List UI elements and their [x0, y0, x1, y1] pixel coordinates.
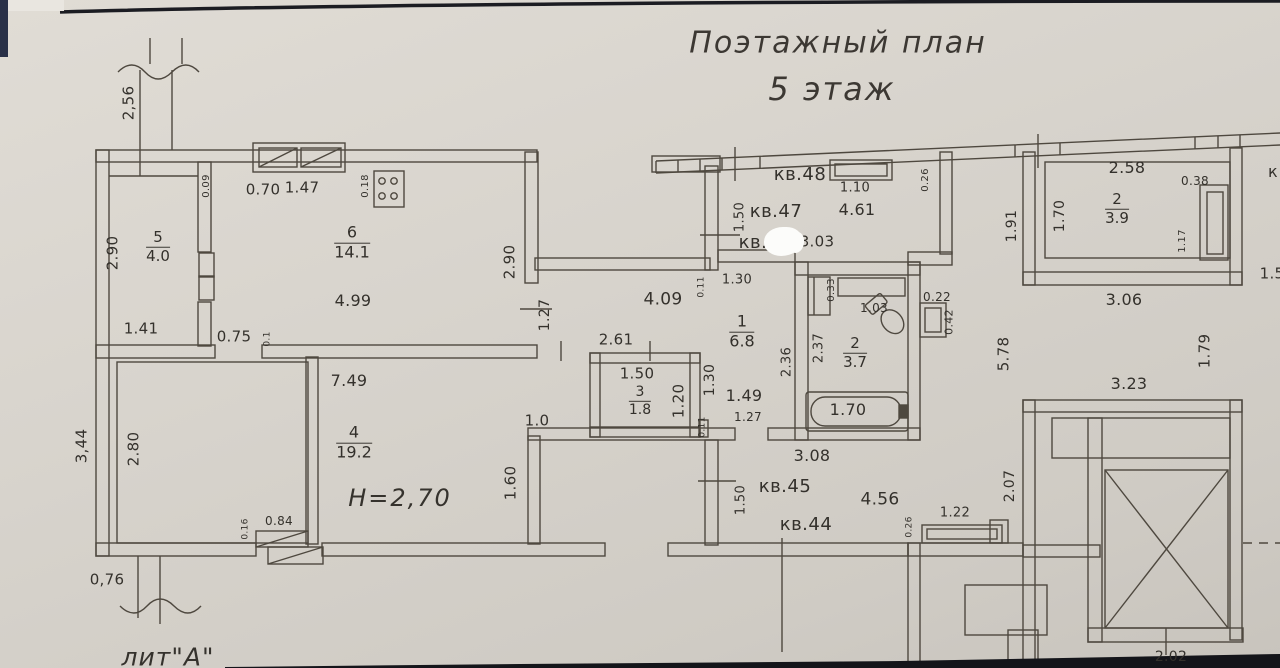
dim-label: 2.07 — [1003, 470, 1017, 502]
dim-label: 1.49 — [726, 388, 763, 404]
room-number: 1 — [729, 314, 754, 333]
dim-label: 7.49 — [331, 373, 368, 389]
dim-label: 3.23 — [1111, 376, 1148, 392]
litera-note: лит"А" — [122, 643, 215, 668]
dim-label: 1.50 — [734, 202, 747, 232]
room-area: 3.7 — [843, 355, 867, 371]
dim-label: 0.16 — [242, 518, 251, 539]
dim-label: 4.09 — [643, 292, 682, 309]
room-area: 1.8 — [629, 403, 651, 418]
photo-edge-strip — [0, 0, 8, 57]
dim-label: 1.30 — [722, 274, 752, 287]
dim-label: 3,44 — [75, 429, 90, 464]
dim-label: 1.50 — [620, 367, 655, 382]
dim-label: 1.70 — [830, 402, 867, 418]
room-label: 54.0 — [146, 230, 170, 265]
dim-label: 0.1 — [264, 331, 273, 346]
plan-title: Поэтажный план — [689, 26, 986, 61]
dim-label: 2.36 — [781, 347, 794, 377]
dim-label: 0.75 — [217, 330, 252, 345]
dim-label: 1.03 — [860, 302, 888, 314]
room-label: 31.8 — [629, 385, 651, 417]
dim-label: 0,76 — [90, 573, 125, 588]
dim-label: 1.27 — [538, 299, 552, 331]
dim-label: 0.11 — [699, 416, 708, 437]
room-number: 2 — [1105, 192, 1129, 210]
dim-label: 1.41 — [124, 322, 159, 337]
dim-label: 0.26 — [921, 168, 931, 191]
dim-label: к — [1268, 164, 1278, 180]
room-number: 4 — [336, 425, 372, 444]
dim-label: 1.0 — [525, 414, 550, 429]
room-number: 3 — [629, 385, 651, 402]
dim-label: 0.70 — [246, 183, 281, 198]
room-label: 23.9 — [1105, 192, 1129, 227]
dim-label: 2.90 — [503, 245, 518, 280]
dim-label: 2.61 — [599, 333, 634, 348]
plan-floor-subtitle: 5 этаж — [768, 70, 895, 108]
room-area: 14.1 — [334, 245, 370, 262]
room-number: 5 — [146, 230, 170, 248]
dim-label: 4.56 — [860, 492, 899, 509]
dim-label: 1.20 — [672, 384, 687, 419]
room-number: 6 — [334, 225, 370, 244]
room-area: 6.8 — [729, 334, 754, 351]
dim-label: 3.03 — [800, 235, 835, 250]
dim-label: 4.61 — [839, 202, 876, 218]
dim-label: 1.91 — [1005, 210, 1019, 242]
apartment-label: кв.48 — [774, 166, 827, 184]
room-label: 23.7 — [843, 336, 867, 371]
dim-label: 0.38 — [1181, 175, 1209, 187]
dim-label: 0.84 — [265, 515, 293, 527]
dim-label: 1.5 — [1260, 267, 1280, 282]
dim-label: 2.58 — [1109, 160, 1146, 176]
dim-label: 1.10 — [840, 182, 870, 195]
dim-label: 2.90 — [106, 236, 121, 271]
room-label: 419.2 — [336, 425, 372, 462]
apartment-label: кв.44 — [780, 516, 833, 534]
dim-label: 2.02 — [1155, 650, 1187, 664]
dim-label: 0.26 — [906, 516, 915, 537]
dim-label: 2.80 — [127, 432, 142, 467]
dim-label: 0.09 — [202, 174, 212, 197]
dim-label: 1.70 — [1053, 200, 1067, 232]
room-area: 4.0 — [146, 249, 170, 265]
paper-edge-highlight — [0, 0, 64, 11]
floorplan-linework — [0, 0, 1280, 668]
dim-label: 1.30 — [703, 364, 717, 396]
dim-label: 0.42 — [944, 309, 955, 335]
dim-label: 2.37 — [813, 333, 826, 363]
dim-label: 1.79 — [1198, 334, 1213, 369]
apartment-label: кв.45 — [759, 478, 812, 496]
room-label: 614.1 — [334, 225, 370, 262]
dim-label: 0.18 — [361, 174, 371, 197]
room-number: 2 — [843, 336, 867, 354]
ceiling-height-note: H=2,70 — [348, 484, 452, 512]
floor-plan-photo: Поэтажный план 5 этаж H=2,70 лит"А" 2,56… — [0, 0, 1280, 668]
dim-label: 1.17 — [1178, 229, 1188, 252]
dim-label: 2,56 — [122, 86, 137, 121]
dim-label: 0.11 — [698, 276, 707, 297]
dim-label: 1.60 — [504, 466, 519, 501]
room-area: 3.9 — [1105, 211, 1129, 227]
dim-label: 0.33 — [827, 278, 837, 301]
dim-label: 3.06 — [1106, 292, 1143, 308]
dim-label: 4.99 — [335, 293, 372, 309]
dim-label: 1.27 — [734, 411, 762, 423]
dim-label: 0.22 — [923, 291, 951, 303]
dim-label: 1.50 — [735, 485, 748, 515]
dim-label: 3.08 — [794, 448, 831, 464]
apartment-label: кв.47 — [750, 203, 803, 221]
room-label: 16.8 — [729, 314, 754, 351]
dim-label: 5.78 — [997, 337, 1012, 372]
dim-label: 1.22 — [940, 507, 970, 520]
room-area: 19.2 — [336, 445, 372, 462]
dim-label: 1.47 — [285, 181, 320, 196]
